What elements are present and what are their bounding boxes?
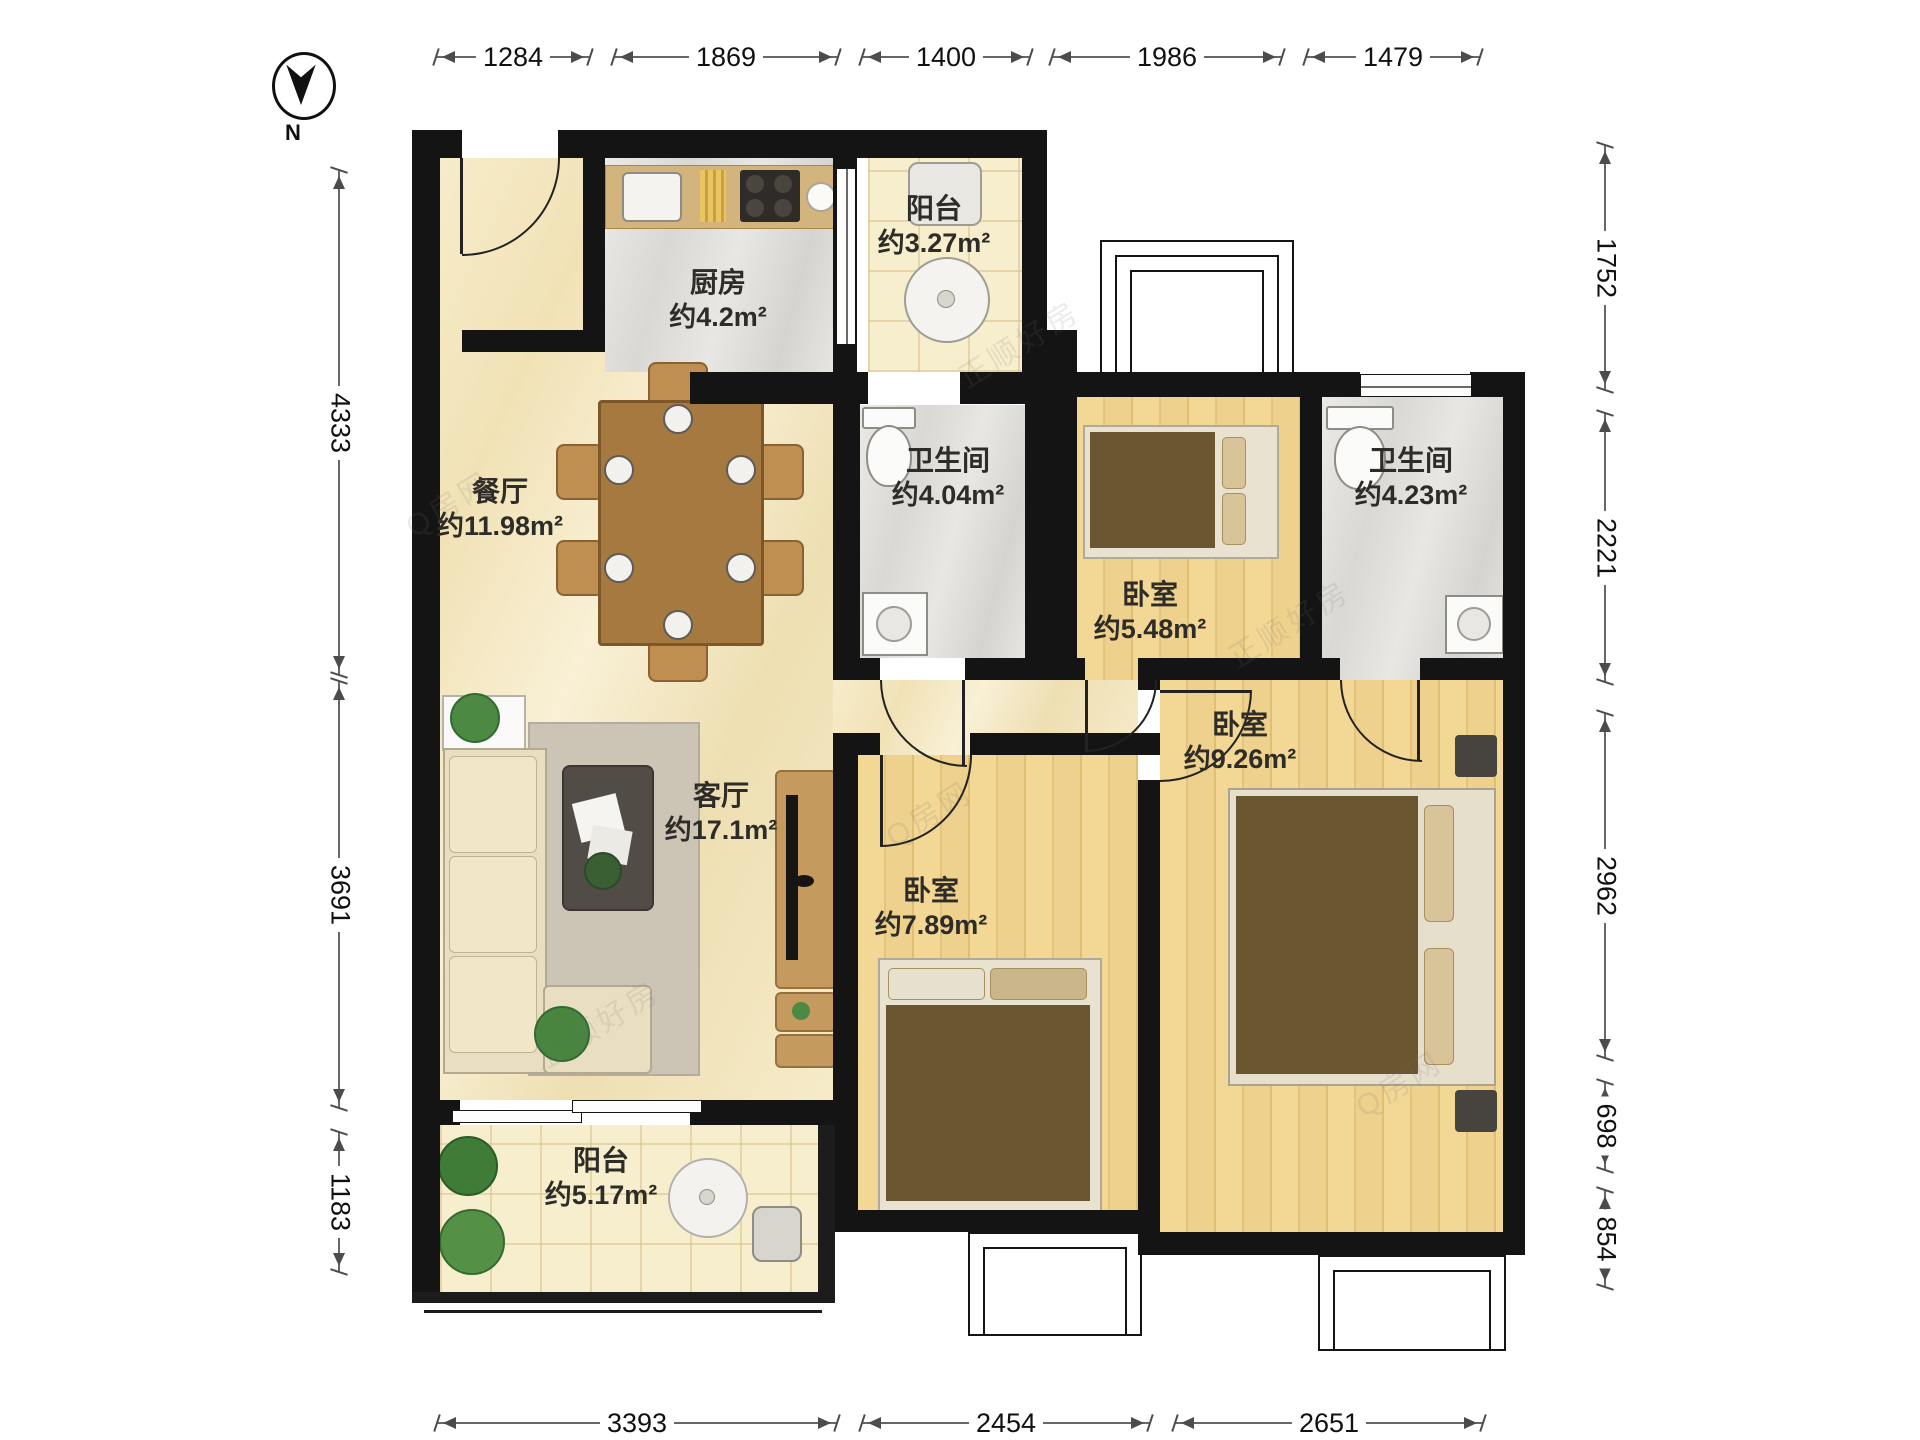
stove-burner <box>774 175 792 193</box>
pillow <box>1424 805 1454 922</box>
balcony-rail-line <box>424 1310 822 1313</box>
wall <box>970 733 1160 755</box>
balcony-table-center <box>699 1189 715 1205</box>
tv-stand <box>794 875 814 887</box>
stove-burner <box>774 199 792 217</box>
dim-value: 2962 <box>1591 848 1622 922</box>
dim-bottom-3: 2651 <box>1175 1422 1483 1424</box>
wall <box>1503 372 1525 1255</box>
dim-top-2: 1869 <box>614 56 838 58</box>
wall <box>690 1100 835 1125</box>
bed-small-mattress <box>1090 432 1215 548</box>
dim-top-4: 1986 <box>1052 56 1282 58</box>
dim-value: 4333 <box>325 385 356 459</box>
wall <box>1138 780 1160 1232</box>
north-arrow-icon <box>285 63 317 105</box>
sink-basin <box>1457 607 1491 641</box>
dining-table <box>598 400 764 646</box>
wall <box>833 733 880 755</box>
dim-top-5: 1479 <box>1306 56 1480 58</box>
room-label-kitchen: 厨房 约4.2m² <box>669 265 767 335</box>
plant <box>450 693 500 743</box>
dim-value: 2651 <box>1292 1408 1366 1439</box>
room-label-bedroom-mid: 卧室 约9.26m² <box>1184 707 1297 777</box>
room-area: 约7.89m² <box>875 909 988 943</box>
room-area: 约17.1m² <box>665 814 778 848</box>
balcony-rail <box>412 1292 835 1303</box>
plate <box>726 455 756 485</box>
cabinet <box>775 1034 837 1068</box>
room-area: 约4.2m² <box>669 301 767 335</box>
room-name: 卫生间 <box>1355 443 1468 479</box>
balcony-chair <box>752 1206 802 1262</box>
room-name: 客厅 <box>665 778 778 814</box>
bay-window-bedroom-mid-inner <box>1333 1270 1491 1351</box>
plate <box>663 610 693 640</box>
bed-bottom-mattress <box>886 1005 1090 1201</box>
wall <box>558 130 1045 158</box>
room-area: 约4.04m² <box>892 479 1005 513</box>
dim-top-3: 1400 <box>862 56 1030 58</box>
nightstand <box>1455 735 1497 777</box>
dining-chair <box>556 540 604 596</box>
pillow <box>990 968 1087 1000</box>
dim-value: 1986 <box>1130 42 1204 73</box>
dim-value: 1869 <box>689 42 763 73</box>
room-area: 约5.17m² <box>545 1179 658 1213</box>
room-name: 卧室 <box>1184 707 1297 743</box>
dim-bottom-1: 3393 <box>437 1422 837 1424</box>
washing-machine-dial <box>937 290 955 308</box>
dim-value: 854 <box>1591 1209 1622 1268</box>
bay-window-bedroom-small-innermost <box>1130 270 1264 378</box>
room-area: 约5.48m² <box>1094 613 1207 647</box>
stove-burner <box>746 199 764 217</box>
wall <box>1047 372 1360 397</box>
nightstand <box>1455 1090 1497 1132</box>
bed-mid-mattress <box>1236 796 1418 1074</box>
sink-basin <box>876 606 912 642</box>
compass-icon <box>272 52 336 120</box>
dim-right-4: 698 <box>1604 1082 1606 1170</box>
wall <box>1138 1232 1525 1255</box>
dim-value: 1284 <box>476 42 550 73</box>
floor-plan-canvas: N <box>0 0 1920 1440</box>
room-label-bedroom-small: 卧室 约5.48m² <box>1094 577 1207 647</box>
wall <box>833 755 858 1232</box>
bay-window-bedroom-bottom-inner <box>983 1247 1127 1336</box>
dim-bottom-2: 2454 <box>862 1422 1150 1424</box>
dim-top-1: 1284 <box>436 56 590 58</box>
plant <box>584 852 622 890</box>
dim-value: 2454 <box>969 1408 1043 1439</box>
dim-value: 1479 <box>1356 42 1430 73</box>
cutting-board <box>700 170 726 222</box>
dim-left-3: 1183 <box>338 1132 340 1272</box>
dim-right-2: 2221 <box>1604 413 1606 682</box>
sofa-cushion <box>449 956 537 1053</box>
room-area: 约9.26m² <box>1184 743 1297 777</box>
kitchen-window <box>836 168 856 345</box>
dim-value: 3393 <box>600 1408 674 1439</box>
room-name: 厨房 <box>669 265 767 301</box>
dim-right-5: 854 <box>1604 1190 1606 1287</box>
wall <box>965 658 1085 680</box>
room-name: 卧室 <box>875 873 988 909</box>
dim-right-3: 2962 <box>1604 713 1606 1058</box>
wall <box>583 142 605 352</box>
room-label-balcony-top: 阳台 约3.27m² <box>878 191 991 261</box>
room-label-bedroom-bottom: 卧室 约7.89m² <box>875 873 988 943</box>
dim-value: 698 <box>1591 1096 1622 1155</box>
room-label-living: 客厅 约17.1m² <box>665 778 778 848</box>
plant-decor <box>792 1002 810 1020</box>
sofa-cushion <box>449 856 537 953</box>
room-area: 约4.23m² <box>1355 479 1468 513</box>
kitchen-sink <box>622 172 682 222</box>
room-name: 阳台 <box>878 191 991 227</box>
balcony-rail <box>818 1125 835 1302</box>
wall <box>462 330 605 352</box>
dim-right-1: 1752 <box>1604 145 1606 390</box>
wall <box>833 1210 1160 1232</box>
dim-value: 1400 <box>909 42 983 73</box>
wall <box>858 658 880 680</box>
plate <box>726 553 756 583</box>
dim-value: 1752 <box>1591 230 1622 304</box>
plate <box>604 455 634 485</box>
dim-value: 2221 <box>1591 510 1622 584</box>
plant <box>439 1209 505 1275</box>
room-label-balcony-bottom: 阳台 约5.17m² <box>545 1143 658 1213</box>
room-label-bath-right: 卫生间 约4.23m² <box>1355 443 1468 513</box>
plant <box>438 1136 498 1196</box>
room-name: 卫生间 <box>892 443 1005 479</box>
bath-right-window <box>1360 374 1472 397</box>
room-label-bath-left: 卫生间 约4.04m² <box>892 443 1005 513</box>
sliding-door-panel <box>572 1100 702 1113</box>
sliding-door-panel <box>452 1110 582 1123</box>
room-name: 阳台 <box>545 1143 658 1179</box>
wall <box>1470 372 1503 397</box>
dining-chair <box>556 444 604 500</box>
sofa-cushion <box>449 756 537 853</box>
room-name: 卧室 <box>1094 577 1207 613</box>
dim-left-2: 3691 <box>338 681 340 1108</box>
compass-north-label: N <box>285 120 301 146</box>
plate <box>604 553 634 583</box>
wall <box>833 372 860 680</box>
dim-value: 1183 <box>325 1166 356 1238</box>
pillow <box>1222 437 1246 489</box>
stove-burner <box>746 175 764 193</box>
room-area: 约3.27m² <box>878 227 991 261</box>
pillow <box>888 968 985 1000</box>
kitchen-bowl <box>806 182 836 212</box>
pillow <box>1222 493 1246 545</box>
plate <box>663 404 693 434</box>
dim-value: 3691 <box>325 857 356 931</box>
dim-left-1: 4333 <box>338 170 340 675</box>
